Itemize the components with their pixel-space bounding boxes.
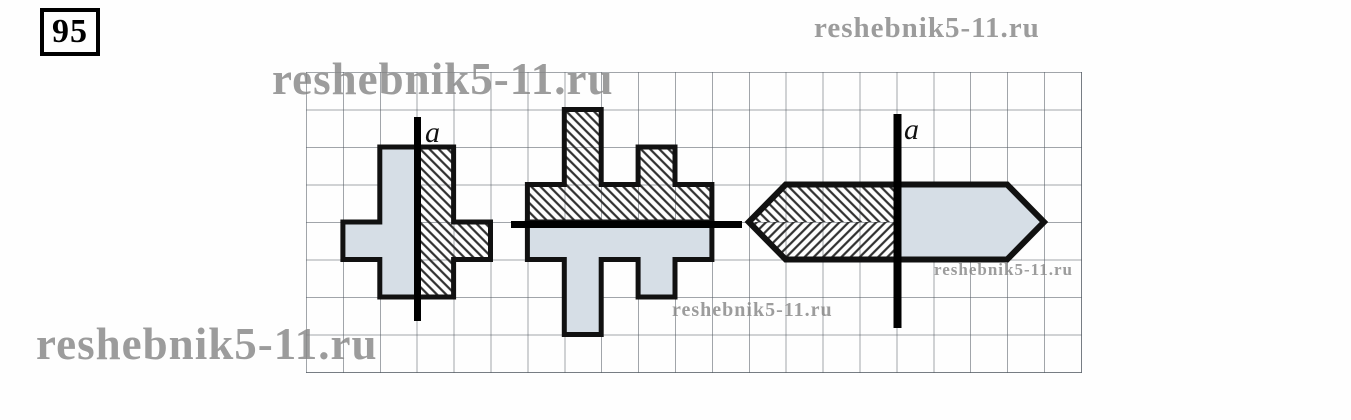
problem-number-badge: 95 [40,8,100,56]
axis-label-a-figure1: a [425,118,440,148]
watermark-top-right: reshebnik5-11.ru [814,14,1040,43]
watermark-upper-left: reshebnik5-11.ru [272,57,613,102]
watermark-bottom-left: reshebnik5-11.ru [36,322,377,367]
grid-paper [306,72,1082,373]
watermark-middle: reshebnik5-11.ru [672,300,833,320]
textbook-figure-page: 95 reshebnik5-11.ru reshebnik5-11.ru res… [0,0,1351,420]
axis-label-a-figure3: a [904,115,919,145]
watermark-right: reshebnik5-11.ru [934,261,1073,278]
